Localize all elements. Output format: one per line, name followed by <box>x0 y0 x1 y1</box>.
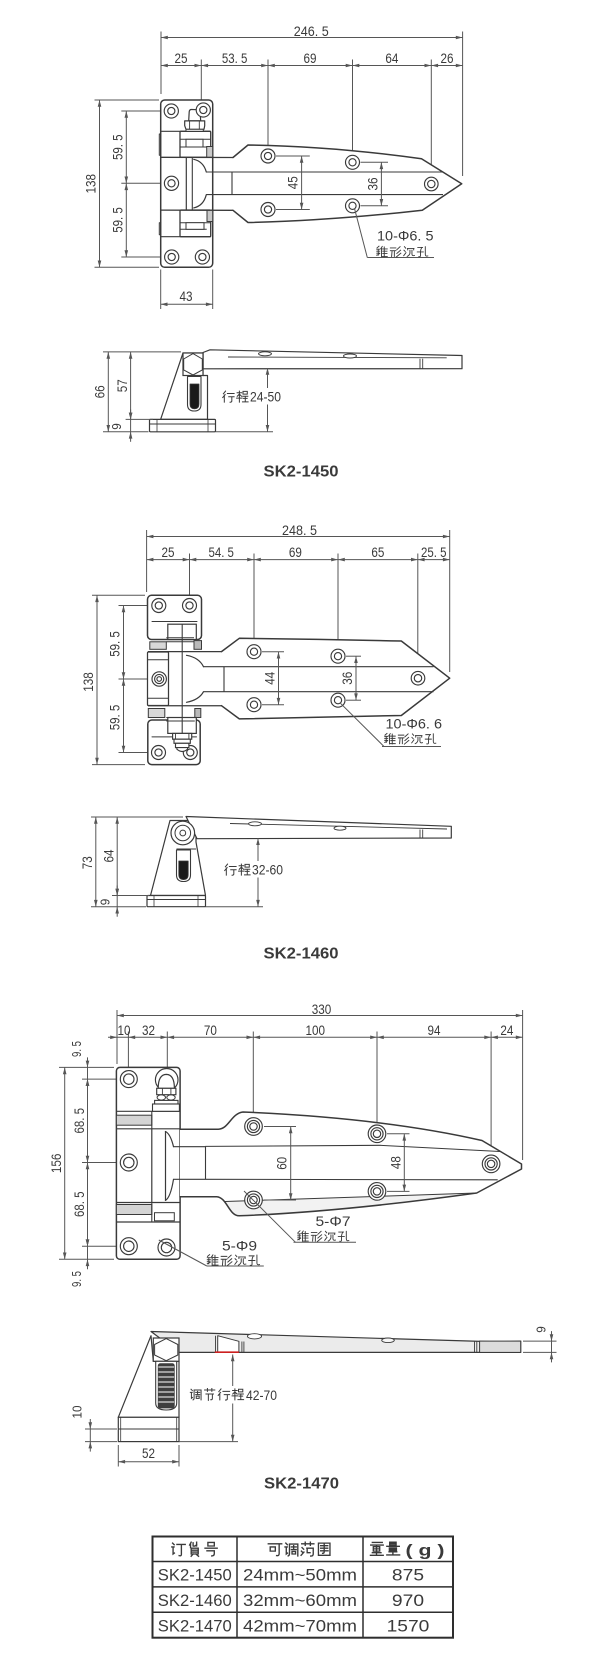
svg-text:SK2-1470: SK2-1470 <box>264 1476 339 1493</box>
svg-text:138: 138 <box>80 672 96 692</box>
svg-text:248. 5: 248. 5 <box>282 522 317 538</box>
svg-text:1570: 1570 <box>387 1616 430 1635</box>
svg-text:36: 36 <box>339 672 355 685</box>
svg-text:SK2-1470: SK2-1470 <box>158 1616 232 1635</box>
svg-text:36: 36 <box>364 177 380 190</box>
svg-text:100: 100 <box>305 1022 325 1038</box>
svg-text:65: 65 <box>371 544 384 560</box>
svg-text:59. 5: 59. 5 <box>107 705 123 731</box>
svg-text:24mm~50mm: 24mm~50mm <box>243 1566 357 1585</box>
svg-text:24: 24 <box>500 1022 513 1038</box>
svg-text:53. 5: 53. 5 <box>222 50 248 66</box>
svg-text:10: 10 <box>70 1406 85 1419</box>
svg-text:26: 26 <box>441 50 454 66</box>
svg-text:54. 5: 54. 5 <box>208 544 234 560</box>
svg-text:5-Φ7: 5-Φ7 <box>316 1214 351 1229</box>
svg-text:9: 9 <box>533 1326 548 1333</box>
svg-text:73: 73 <box>79 856 95 869</box>
svg-text:SK2-1460: SK2-1460 <box>158 1591 232 1610</box>
svg-text:59. 5: 59. 5 <box>110 134 126 160</box>
svg-text:9. 5: 9. 5 <box>69 1271 84 1287</box>
svg-text:9. 5: 9. 5 <box>69 1041 84 1057</box>
svg-text:138: 138 <box>83 174 99 194</box>
svg-text:246. 5: 246. 5 <box>294 23 329 39</box>
svg-text:60: 60 <box>274 1157 290 1170</box>
svg-text:44: 44 <box>262 672 278 685</box>
svg-text:32: 32 <box>142 1022 155 1038</box>
svg-text:24-50: 24-50 <box>250 390 281 405</box>
svg-text:10-Φ6. 5: 10-Φ6. 5 <box>377 229 434 244</box>
svg-text:10: 10 <box>118 1022 131 1038</box>
svg-text:330: 330 <box>312 1001 332 1017</box>
svg-text:9: 9 <box>98 899 113 906</box>
svg-text:52: 52 <box>142 1445 155 1461</box>
svg-text:25: 25 <box>175 50 188 66</box>
svg-text:32-60: 32-60 <box>252 863 283 878</box>
svg-text:43: 43 <box>180 288 193 304</box>
svg-text:156: 156 <box>48 1153 64 1173</box>
svg-text:SK2-1460: SK2-1460 <box>264 946 339 963</box>
svg-text:68. 5: 68. 5 <box>71 1191 87 1217</box>
svg-text:69: 69 <box>304 50 317 66</box>
svg-text:57: 57 <box>114 379 130 392</box>
svg-text:45: 45 <box>285 176 301 189</box>
svg-text:9: 9 <box>109 423 124 430</box>
svg-text:94: 94 <box>428 1022 441 1038</box>
svg-text:64: 64 <box>100 849 116 862</box>
svg-text:5-Φ9: 5-Φ9 <box>222 1239 257 1254</box>
svg-text:42mm~70mm: 42mm~70mm <box>243 1616 357 1635</box>
svg-text:SK2-1450: SK2-1450 <box>264 464 339 481</box>
svg-text:48: 48 <box>387 1156 403 1169</box>
svg-text:SK2-1450: SK2-1450 <box>158 1566 232 1585</box>
svg-text:59. 5: 59. 5 <box>107 631 123 657</box>
svg-text:68. 5: 68. 5 <box>71 1108 87 1134</box>
svg-text:32mm~60mm: 32mm~60mm <box>243 1591 357 1610</box>
svg-text:42-70: 42-70 <box>246 1388 277 1403</box>
svg-text:25. 5: 25. 5 <box>421 544 447 560</box>
svg-text:70: 70 <box>204 1022 217 1038</box>
svg-text:66: 66 <box>92 385 108 398</box>
svg-text:( g ): ( g ) <box>406 1542 445 1559</box>
svg-text:64: 64 <box>385 50 398 66</box>
svg-text:970: 970 <box>392 1591 424 1610</box>
svg-text:59. 5: 59. 5 <box>110 207 126 233</box>
svg-text:25: 25 <box>162 544 175 560</box>
svg-text:875: 875 <box>392 1566 424 1585</box>
svg-text:69: 69 <box>289 544 302 560</box>
svg-text:10-Φ6. 6: 10-Φ6. 6 <box>386 717 443 732</box>
